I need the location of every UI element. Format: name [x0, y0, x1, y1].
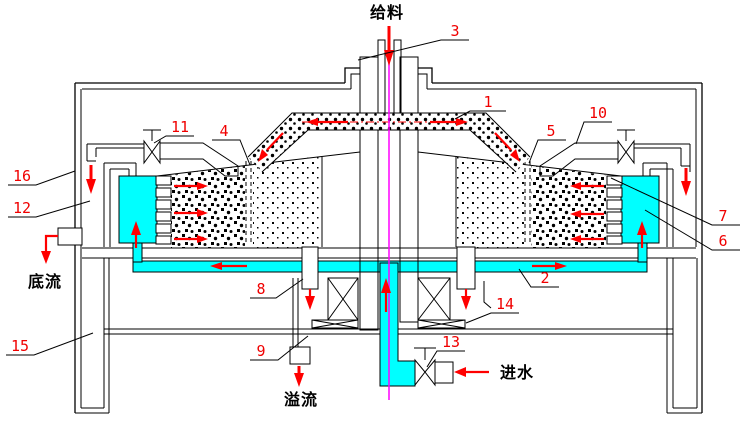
underflow-arrow [46, 236, 58, 251]
valve-11-body [144, 141, 152, 163]
part-label-16-text: 16 [13, 167, 31, 185]
part-label-11-text: 11 [171, 118, 189, 136]
feed-label: 给料 [370, 3, 404, 22]
classifier-diagram: 1 2 3 4 5 6 7 8 9 10 11 12 [0, 0, 740, 427]
underflow-outlet [58, 228, 82, 245]
part-label-9-text: 9 [256, 342, 265, 360]
part-label-12-text: 12 [13, 199, 31, 217]
part-label-15-text: 15 [11, 337, 29, 355]
motor-left [312, 278, 358, 328]
left-riser [133, 243, 142, 262]
part-label-8: 8 [250, 279, 303, 298]
water-inlet-valve [414, 348, 453, 385]
bed-right-coarse [531, 166, 606, 248]
part-label-12: 12 [8, 199, 90, 217]
right-comb-grid [607, 176, 622, 244]
part-label-14-text: 14 [496, 295, 514, 313]
inlet-flange [435, 362, 453, 383]
part-label-8-text: 8 [256, 280, 265, 298]
overflow-outlet [290, 278, 310, 364]
part-label-13-text: 13 [442, 333, 460, 351]
part-label-15: 15 [6, 333, 93, 355]
part-label-10: 10 [576, 104, 612, 144]
part-label-5: 5 [529, 122, 566, 163]
part-label-2-text: 2 [540, 269, 549, 287]
overflow-label: 溢流 [284, 390, 318, 409]
right-baffle [525, 161, 530, 245]
part-label-3: 3 [358, 22, 469, 60]
part-label-1-text: 1 [483, 93, 492, 111]
part-label-10-text: 10 [589, 104, 607, 122]
valve-10-handle [617, 130, 635, 141]
left-comb-grid [156, 176, 171, 244]
part-label-6-text: 6 [718, 232, 727, 250]
part-label-16: 16 [8, 167, 75, 185]
part-label-3-text: 3 [450, 22, 459, 40]
valve-10-body [618, 141, 626, 163]
part-label-4: 4 [212, 122, 250, 165]
diagram-canvas: 1 2 3 4 5 6 7 8 9 10 11 12 [0, 0, 740, 427]
bed-left-coarse [171, 166, 245, 248]
valve-11-handle [143, 130, 161, 141]
part-label-7-text: 7 [718, 207, 727, 225]
underflow-label: 底流 [28, 272, 62, 291]
part-label-4-text: 4 [219, 122, 228, 140]
part-label-14: 14 [466, 295, 519, 323]
water-inlet-label: 进水 [500, 363, 534, 382]
part-label-5-text: 5 [546, 122, 555, 140]
left-baffle [246, 161, 251, 245]
